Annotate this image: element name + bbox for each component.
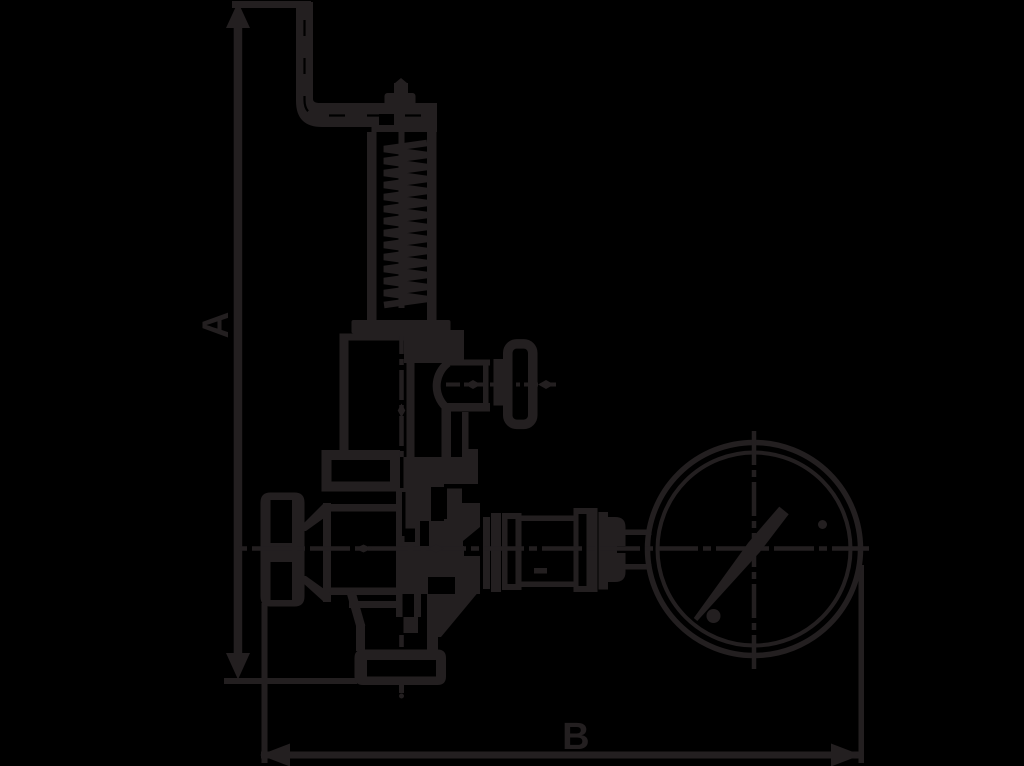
svg-text:B: B bbox=[562, 716, 589, 758]
svg-text:A: A bbox=[195, 312, 236, 339]
